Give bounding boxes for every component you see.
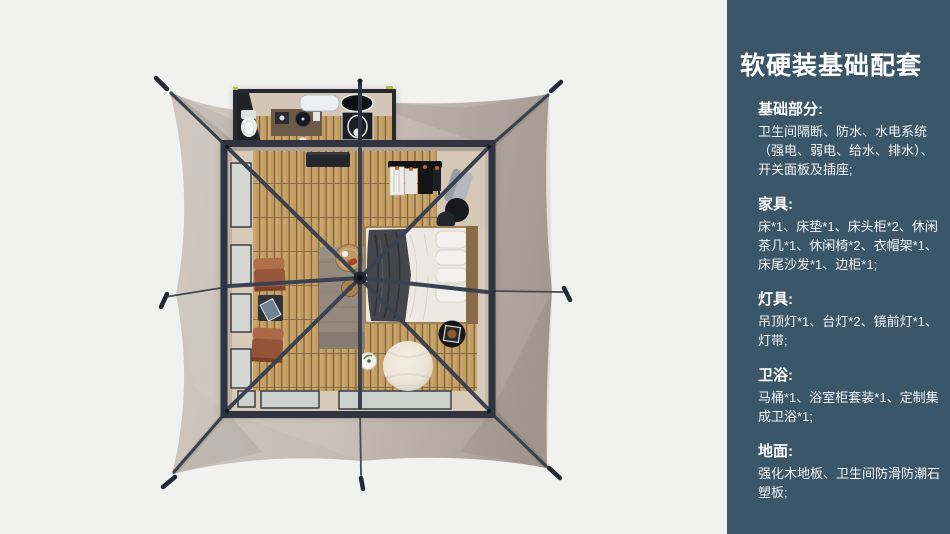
- slide: 软硬装基础配套 基础部分: 卫生间隔断、防水、水电系统（强电、弱电、给水、排水）…: [0, 0, 950, 534]
- pouf: [383, 341, 433, 391]
- tent-top-view-render: [0, 0, 727, 534]
- bottom-windows: [238, 391, 451, 409]
- clothes-rack: [388, 161, 442, 195]
- section-basics: 基础部分: 卫生间隔断、防水、水电系统（强电、弱电、给水、排水）、开关面板及插座…: [758, 100, 942, 179]
- section-heading: 卫浴:: [758, 366, 942, 385]
- section-bathroom: 卫浴: 马桶*1、浴室柜套装*1、定制集成卫浴*1;: [758, 366, 942, 426]
- info-panel: 软硬装基础配套 基础部分: 卫生间隔断、防水、水电系统（强电、弱电、给水、排水）…: [727, 0, 950, 534]
- panel-sections: 基础部分: 卫生间隔断、防水、水电系统（强电、弱电、给水、排水）、开关面板及插座…: [758, 100, 942, 502]
- plant-table: [360, 353, 377, 370]
- section-body: 床*1、床垫*1、床头柜*2、休闲茶几*1、休闲椅*2、衣帽架*1、床尾沙发*1…: [758, 217, 940, 274]
- left-windows: [231, 163, 251, 388]
- bed: [364, 226, 478, 324]
- bench-highlight: [306, 152, 350, 155]
- section-heading: 灯具:: [758, 290, 942, 309]
- bathroom-unit: [233, 86, 396, 147]
- section-heading: 地面:: [758, 442, 942, 461]
- skylight: [300, 95, 339, 111]
- ridge-pole-cap: [358, 79, 363, 84]
- mirror: [341, 95, 373, 112]
- section-body: 卫生间隔断、防水、水电系统（强电、弱电、给水、排水）、开关面板及插座;: [758, 122, 940, 179]
- section-furniture: 家具: 床*1、床垫*1、床头柜*2、休闲茶几*1、休闲椅*2、衣帽架*1、床尾…: [758, 195, 942, 274]
- toilet: [241, 110, 257, 137]
- corner-fitting-left: [233, 87, 238, 90]
- section-body: 强化木地板、卫生间防滑防潮石塑板;: [758, 464, 940, 502]
- bathroom-vanity: [271, 109, 322, 136]
- headboard: [466, 226, 478, 324]
- shower-unit: [342, 112, 373, 140]
- section-heading: 家具:: [758, 195, 942, 214]
- lounge-chair-1: [253, 257, 285, 291]
- side-table: [439, 321, 466, 348]
- panel-title: 软硬装基础配套: [740, 52, 938, 80]
- center-hub-pin: [357, 275, 363, 281]
- wall-shadow-right: [485, 147, 489, 412]
- section-body: 吊顶灯*1、台灯*2、镜前灯*1、灯带;: [758, 312, 940, 350]
- magazine-table: [258, 295, 283, 321]
- section-lighting: 灯具: 吊顶灯*1、台灯*2、镜前灯*1、灯带;: [758, 290, 942, 350]
- section-body: 马桶*1、浴室柜套装*1、定制集成卫浴*1;: [758, 388, 940, 426]
- section-flooring: 地面: 强化木地板、卫生间防滑防潮石塑板;: [758, 442, 942, 502]
- section-heading: 基础部分:: [758, 100, 942, 119]
- corner-fitting-right: [386, 86, 393, 89]
